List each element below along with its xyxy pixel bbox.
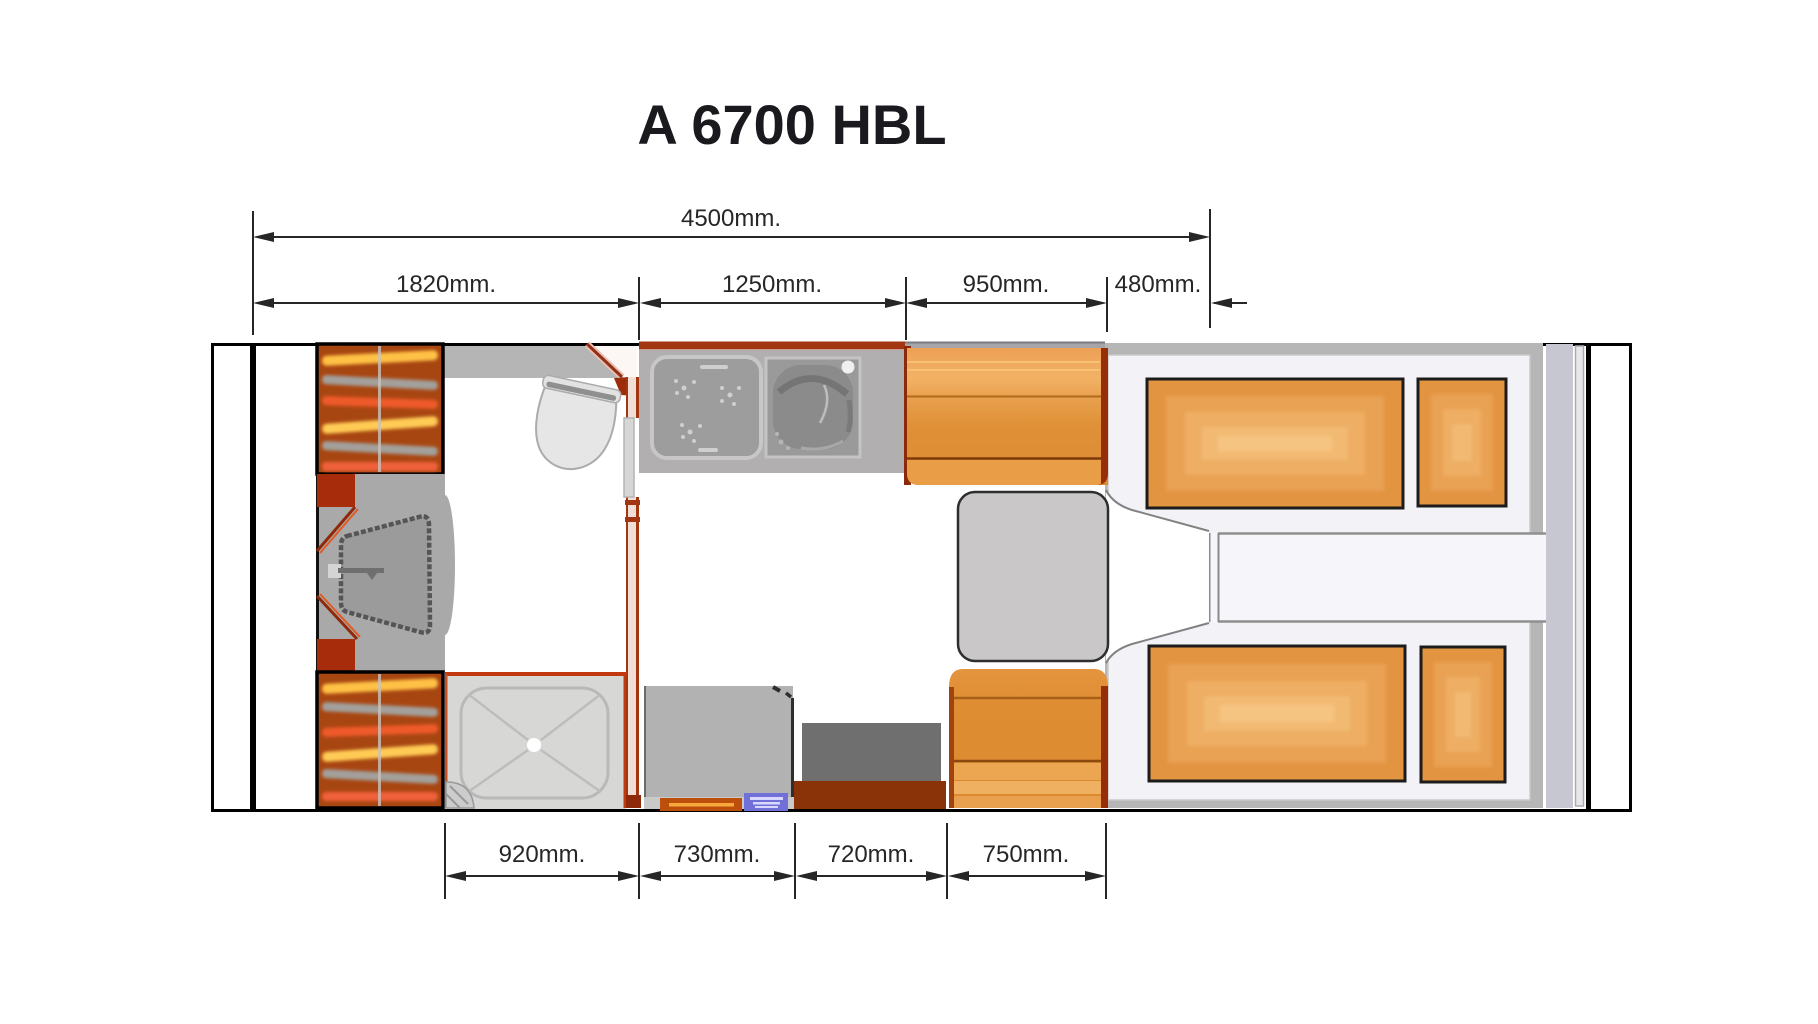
svg-text:4500mm.: 4500mm. bbox=[681, 205, 781, 232]
svg-text:730mm.: 730mm. bbox=[674, 841, 761, 868]
svg-text:1250mm.: 1250mm. bbox=[722, 271, 822, 298]
svg-text:750mm.: 750mm. bbox=[983, 841, 1070, 868]
svg-text:480mm.: 480mm. bbox=[1115, 271, 1202, 298]
svg-text:920mm.: 920mm. bbox=[499, 841, 586, 868]
svg-text:950mm.: 950mm. bbox=[963, 271, 1050, 298]
svg-text:A 6700 HBL: A 6700 HBL bbox=[637, 93, 946, 156]
svg-text:1820mm.: 1820mm. bbox=[396, 271, 496, 298]
svg-text:720mm.: 720mm. bbox=[828, 841, 915, 868]
